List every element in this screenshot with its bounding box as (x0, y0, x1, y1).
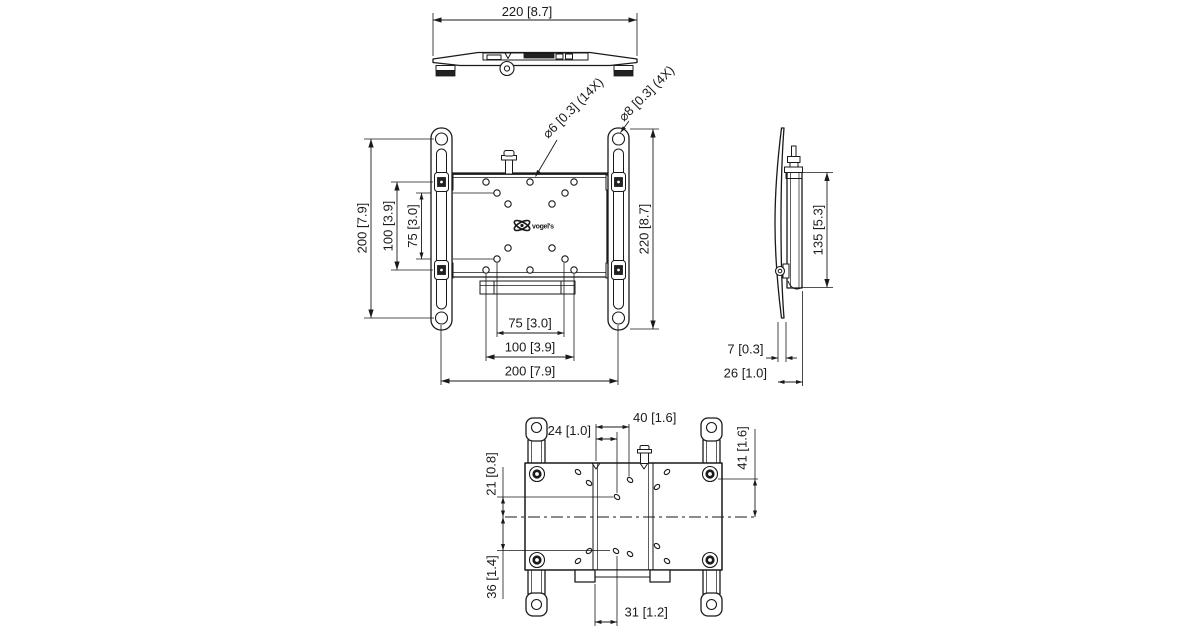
dim-label: 200 [7.9] (505, 364, 556, 379)
dim-label: 21 [0.8] (484, 452, 499, 495)
dim-front-bottom-outer: 200 [7.9] (441, 325, 618, 385)
callout-small-holes: ⌀6 [0.3] (14X) (536, 74, 607, 176)
dim-label: 75 [3.0] (508, 316, 551, 331)
bottom-rail (480, 281, 575, 294)
dim-side-height: 135 [5.3] (802, 173, 833, 288)
logo-text: vogel's (532, 224, 554, 231)
back-body (505, 446, 758, 583)
technical-drawing: 220 [8.7] (0, 0, 1200, 630)
dim-top-width: 220 [8.7] (433, 4, 637, 56)
side-profile (775, 128, 803, 318)
knob-icon (500, 62, 514, 76)
fixing-screw-icon (502, 151, 517, 175)
dim-label: 31 [1.2] (625, 605, 668, 620)
dim-back-right: 41 [1.6] (718, 426, 758, 517)
back-screw-icon (638, 446, 652, 464)
bottom-notch (575, 570, 670, 582)
dim-side-thickness: 7 [0.3] (727, 322, 797, 362)
top-view-part (433, 53, 637, 77)
dim-label: 40 [1.6] (633, 410, 676, 425)
dim-label: 220 [8.7] (637, 204, 652, 255)
dim-label: 75 [3.0] (405, 204, 420, 247)
left-mounting-rail (431, 128, 452, 330)
right-mounting-rail (608, 128, 629, 330)
dim-label: 135 [5.3] (811, 205, 826, 256)
dim-label: 36 [1.4] (484, 555, 499, 598)
dim-label: 100 [3.9] (381, 201, 396, 252)
dim-label: 200 [7.9] (355, 203, 370, 254)
dim-label: 7 [0.3] (727, 342, 763, 357)
top-view: 220 [8.7] (433, 4, 637, 76)
dim-label: 100 [3.9] (505, 340, 556, 355)
dim-side-depth: 26 [1.0] (724, 291, 803, 386)
front-plate: vogel's (444, 151, 615, 295)
back-view: 40 [1.6] 24 [1.0] 21 [0.8] 36 [1.4] 41 [… (484, 410, 759, 626)
dim-front-right-height: 220 [8.7] (630, 129, 659, 329)
dim-label: ⌀6 [0.3] (14X) (540, 74, 607, 141)
dim-label: 220 [8.7] (502, 4, 553, 19)
front-view: vogel's (355, 63, 678, 385)
side-view: 135 [5.3] 7 [0.3] 26 [1.0] (724, 128, 833, 386)
dim-label: 26 [1.0] (724, 366, 767, 381)
dim-label: 24 [1.0] (548, 423, 591, 438)
dim-label: 41 [1.6] (735, 426, 750, 469)
